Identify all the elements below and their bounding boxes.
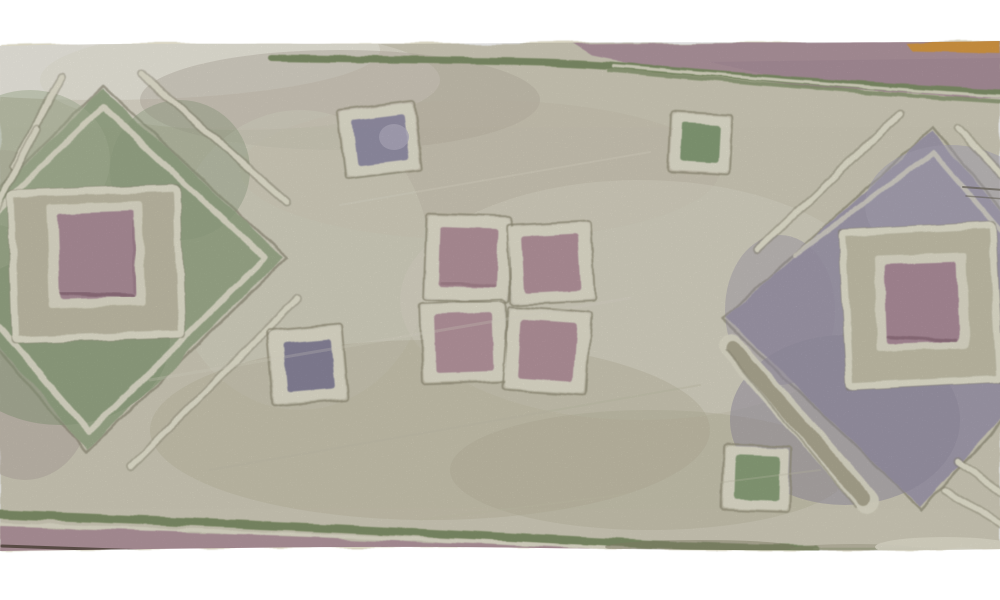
border-artwork-layer — [0, 0, 1000, 557]
wallpaper-border-product-photo — [0, 0, 1000, 600]
wallpaper-border-art — [0, 0, 1000, 600]
paper-grain — [0, 38, 1000, 556]
